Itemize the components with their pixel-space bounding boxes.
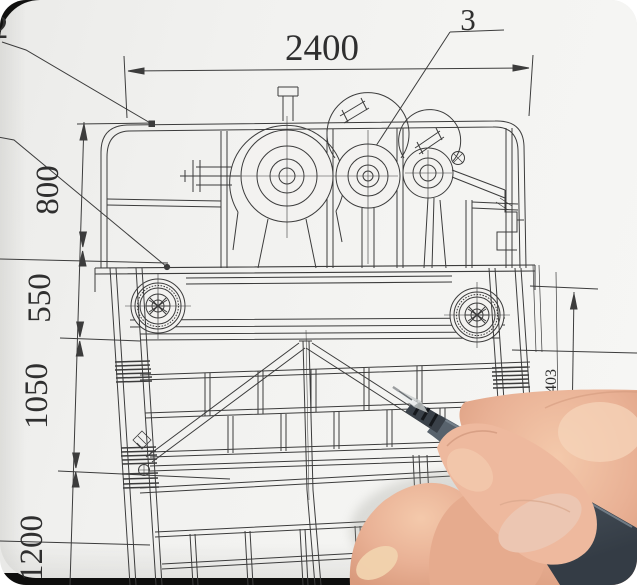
dimension-top-width: 2400 <box>285 28 359 69</box>
dimension-1200: 1200 <box>14 515 50 581</box>
callout-3-label: 3 <box>460 2 476 37</box>
engineering-drawing: 2400 3 2 800 550 1050 1200 1403 <box>0 0 637 585</box>
dimension-1050: 1050 <box>19 363 55 429</box>
photo-of-engineering-drawing: 2400 3 2 800 550 1050 1200 1403 <box>0 0 637 585</box>
callout-2-label: 2 <box>0 10 8 46</box>
dimension-550: 550 <box>22 273 58 323</box>
bearing-left <box>125 273 191 339</box>
dimension-800: 800 <box>30 165 66 215</box>
